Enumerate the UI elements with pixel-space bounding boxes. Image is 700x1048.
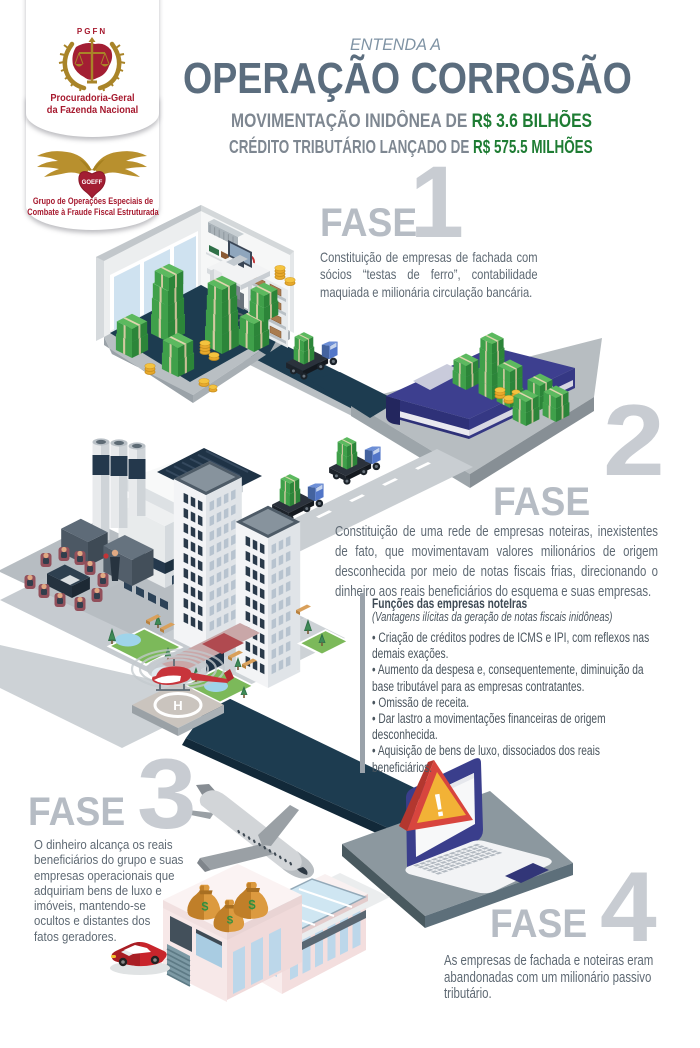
svg-text:$: $ [248,897,256,912]
svg-text:PGFN: PGFN [77,27,107,36]
svg-text:H: H [173,698,182,713]
svg-text:GOEFF: GOEFF [82,180,103,186]
svg-text:$: $ [227,914,234,926]
